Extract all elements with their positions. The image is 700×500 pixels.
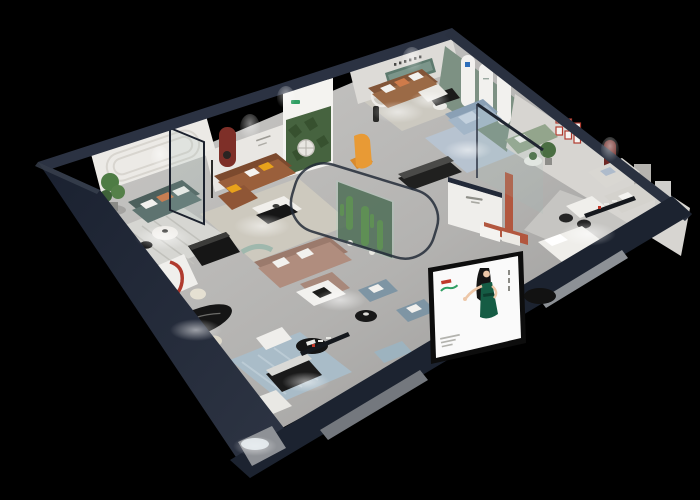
dining-chair-1 <box>559 214 573 223</box>
arch-text-mark <box>483 78 489 79</box>
arch-blue-logo <box>465 62 470 67</box>
showroom-render: Isometric 3D cutaway render of a furnitu… <box>0 0 700 500</box>
black-oval-table-east <box>524 288 556 304</box>
black-side-table-nook <box>355 310 377 322</box>
woman-face <box>483 271 490 278</box>
woman-hand-left <box>463 297 467 301</box>
glass-pane-left <box>170 128 204 224</box>
red-arch-niche <box>219 127 236 167</box>
dining-chair-cream-2 <box>190 289 206 300</box>
orange-slide-form <box>354 134 372 169</box>
billboard-vertical-text <box>508 270 510 291</box>
side-table-cup <box>363 312 369 315</box>
niche-figurine <box>223 151 231 159</box>
plant-foliage-2 <box>111 185 125 199</box>
billboard <box>428 251 526 364</box>
corner-tree-pot <box>545 158 552 165</box>
floorplan-svg: Isometric 3D cutaway render of a furnitu… <box>0 0 700 500</box>
table-vase <box>273 204 280 208</box>
entrance-floor-light <box>241 438 269 450</box>
